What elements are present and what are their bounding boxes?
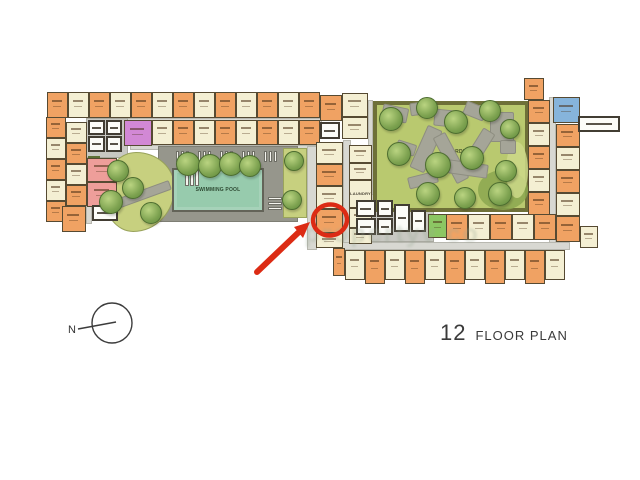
unit	[89, 92, 110, 118]
tree-icon	[444, 110, 468, 134]
unit	[66, 164, 87, 185]
green-unit	[428, 214, 448, 238]
unit	[194, 92, 215, 118]
tree-icon	[416, 182, 440, 206]
unit	[342, 117, 368, 139]
pool-chair	[264, 151, 267, 162]
unit	[316, 164, 343, 186]
tree-icon	[284, 151, 304, 171]
floor-number: 12	[440, 320, 466, 346]
unit	[580, 226, 598, 248]
unit	[525, 250, 545, 284]
service-room	[88, 136, 105, 152]
unit	[349, 163, 372, 180]
unit	[528, 169, 550, 192]
unit	[349, 145, 372, 163]
floor-plan-label: FLOOR PLAN	[475, 328, 567, 343]
unit	[365, 250, 385, 284]
unit	[257, 92, 278, 118]
unit	[534, 214, 556, 240]
tree-icon	[379, 107, 403, 131]
tree-icon	[176, 152, 200, 176]
unit	[556, 216, 580, 242]
unit	[62, 206, 86, 232]
unit	[66, 122, 87, 143]
unit	[46, 117, 66, 138]
compass-needle-icon	[78, 322, 116, 329]
unit	[46, 180, 66, 201]
floor-plan: GARDENGARDENSWIMMING POOLLAUNDRY	[0, 0, 640, 480]
corridor	[340, 242, 570, 250]
unit	[316, 186, 343, 209]
tree-icon	[500, 119, 520, 139]
service-room	[106, 136, 122, 152]
unit	[485, 250, 505, 284]
tree-icon	[488, 182, 512, 206]
unit	[524, 78, 544, 100]
unit	[465, 250, 485, 280]
unit	[131, 92, 152, 118]
unit	[236, 120, 257, 145]
unit	[556, 170, 580, 193]
compass-icon: N	[60, 296, 140, 356]
unit	[316, 142, 343, 164]
tree-icon	[387, 142, 411, 166]
tree-icon	[239, 155, 261, 177]
service-room	[356, 218, 376, 235]
compass-north-label: N	[68, 324, 76, 336]
unit	[385, 250, 405, 280]
unit	[215, 92, 236, 118]
pool-chair	[268, 202, 282, 205]
unit	[316, 233, 343, 248]
unit	[194, 120, 215, 145]
unit	[528, 192, 550, 215]
unit	[152, 120, 173, 145]
tree-icon	[425, 152, 451, 178]
unit	[556, 193, 580, 216]
unit	[299, 92, 320, 118]
tree-icon	[454, 187, 476, 209]
unit	[345, 250, 365, 280]
stone-path	[500, 140, 516, 154]
unit	[446, 214, 468, 240]
unit	[505, 250, 525, 280]
unit	[278, 92, 299, 118]
unit	[556, 147, 580, 170]
unit	[68, 92, 89, 118]
unit	[545, 250, 565, 280]
unit	[528, 123, 550, 146]
unit	[528, 146, 550, 169]
swimming-pool-label: SWIMMING POOL	[196, 188, 241, 193]
tree-icon	[460, 146, 484, 170]
pool-chair	[274, 151, 277, 162]
unit	[47, 92, 68, 118]
pool-chair	[269, 151, 272, 162]
unit	[66, 143, 87, 164]
unit	[152, 92, 173, 118]
laundry-label: LAUNDRY	[350, 192, 371, 196]
unit	[556, 124, 580, 147]
unit	[215, 120, 236, 145]
unit	[278, 120, 299, 145]
service-room	[320, 122, 340, 139]
service-room	[377, 218, 393, 235]
tree-icon	[282, 190, 302, 210]
unit	[236, 92, 257, 118]
tree-icon	[140, 202, 162, 224]
unit	[528, 100, 550, 123]
title-block: 12 FLOOR PLAN	[440, 320, 568, 346]
unit	[445, 250, 465, 284]
tree-icon	[416, 97, 438, 119]
unit	[333, 248, 345, 276]
unit	[66, 185, 87, 206]
unit	[257, 120, 278, 145]
tree-icon	[122, 177, 144, 199]
pool-chair	[268, 207, 282, 210]
floor-plan-canvas: GARDENGARDENSWIMMING POOLLAUNDRY propert…	[0, 0, 640, 480]
service-room	[377, 200, 393, 217]
unit	[46, 138, 66, 159]
service-room	[356, 200, 376, 217]
service-room	[411, 210, 426, 232]
blue-unit	[553, 97, 580, 123]
unit	[425, 250, 445, 280]
unit	[110, 92, 131, 118]
unit	[512, 214, 534, 240]
unit	[320, 95, 342, 121]
unit	[342, 93, 368, 117]
unit	[490, 214, 512, 240]
highlighted-unit	[316, 209, 343, 233]
service-room	[88, 120, 105, 135]
tree-icon	[495, 160, 517, 182]
pool-chair	[268, 197, 282, 200]
tree-icon	[99, 190, 123, 214]
tree-icon	[479, 100, 501, 122]
unit	[46, 159, 66, 180]
service-room	[578, 116, 620, 132]
service-room	[106, 120, 122, 135]
unit	[405, 250, 425, 284]
unit	[468, 214, 490, 240]
purple-unit	[124, 120, 152, 146]
service-room	[394, 204, 410, 232]
unit	[173, 120, 194, 145]
unit	[173, 92, 194, 118]
